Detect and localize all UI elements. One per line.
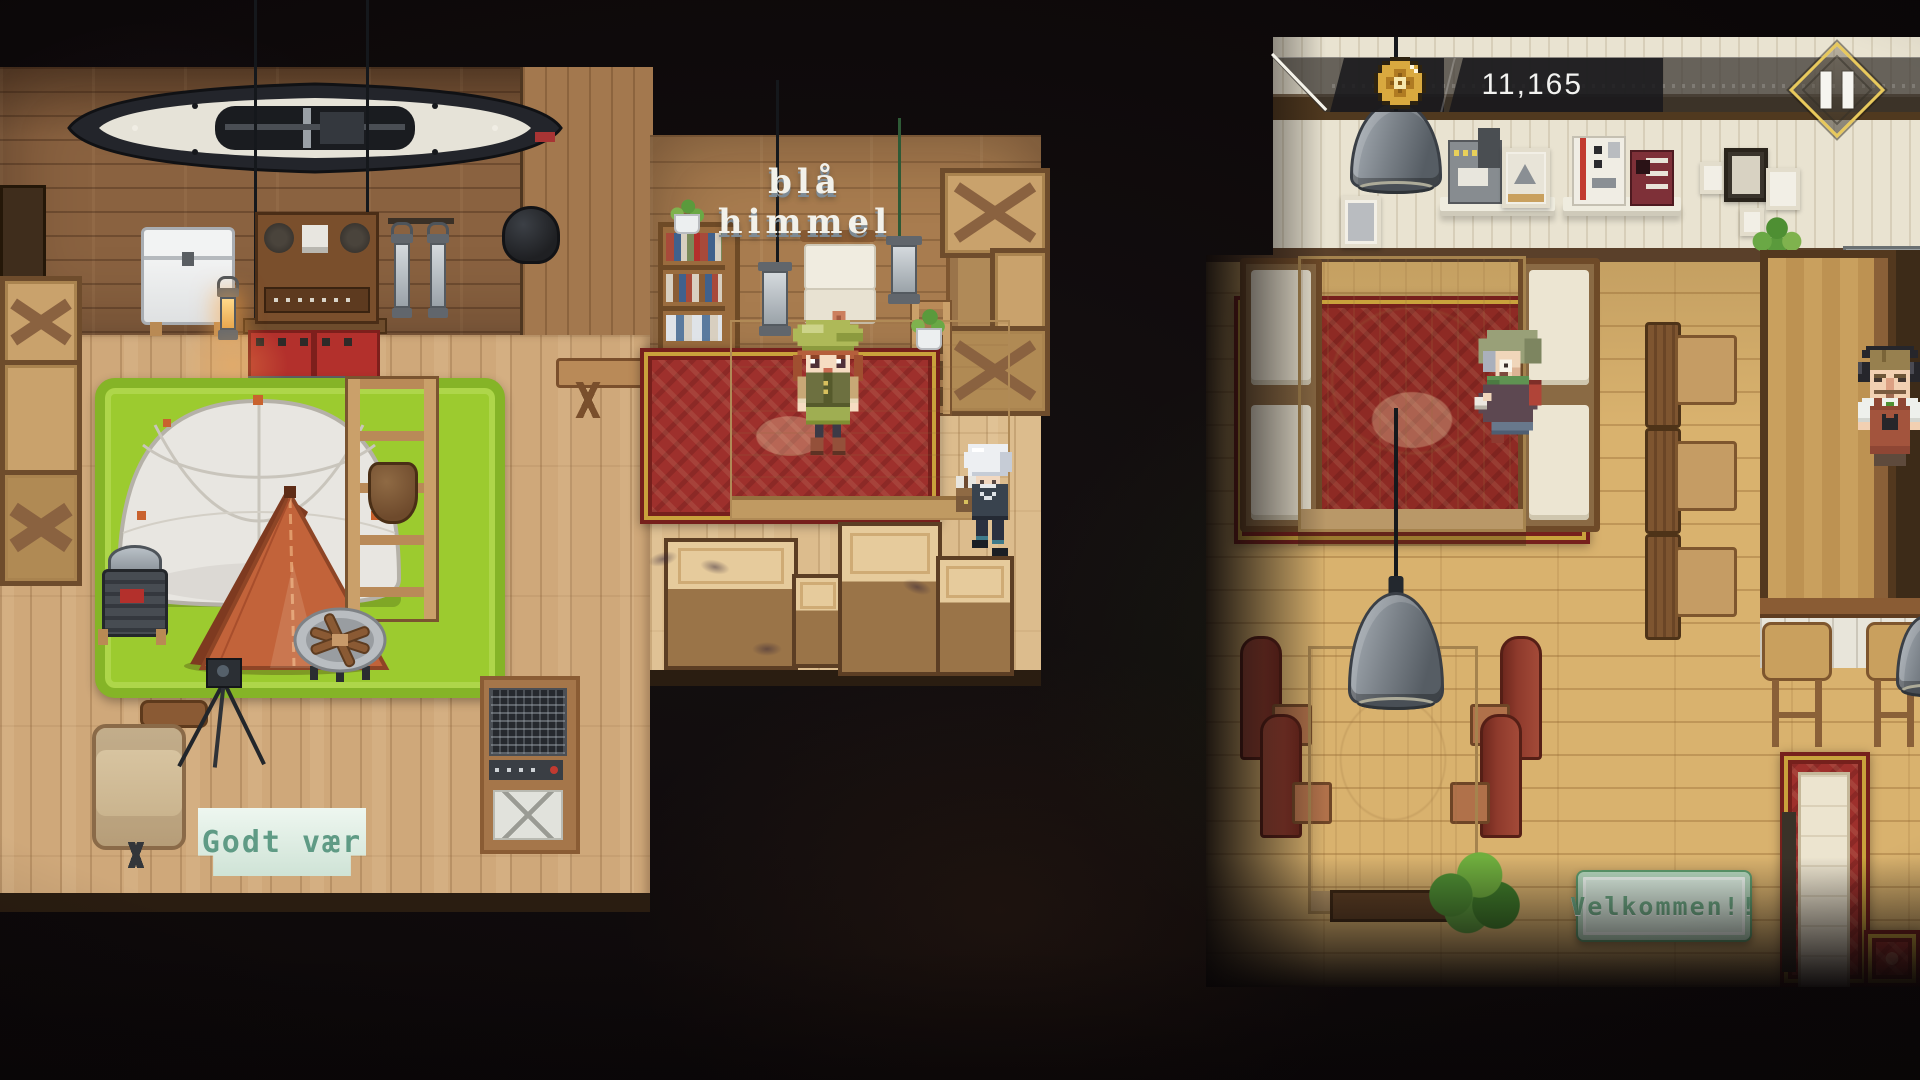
picture-frame (1341, 196, 1381, 248)
side-rug (1864, 930, 1920, 987)
camp-chair (92, 724, 186, 850)
tall-chair (1645, 322, 1741, 422)
velkommen-plaque: Velkommen!! (1576, 870, 1752, 942)
hanging-lantern (388, 234, 416, 318)
side-bench (1782, 812, 1796, 972)
tall-chair (1645, 534, 1741, 634)
grill-top (489, 688, 567, 756)
picture-frame (1700, 162, 1726, 194)
bookshelf (658, 222, 740, 358)
canoe (65, 76, 565, 180)
books-row (666, 274, 722, 302)
pendant-lamp-partial (1896, 615, 1920, 691)
stacked-crate (940, 168, 1050, 258)
bar-stool (1762, 622, 1832, 747)
store-name-sign: blå himmel (680, 162, 930, 242)
grill-cart (480, 676, 580, 854)
bench-leg (566, 382, 610, 418)
barista-npc[interactable] (1850, 346, 1920, 470)
radio-keys (302, 225, 328, 253)
cooler-latch (182, 252, 194, 266)
shelf-line (663, 306, 725, 311)
camera-tripod (176, 640, 286, 780)
floor-crate (792, 574, 844, 668)
shopkeeper-npc[interactable] (780, 306, 876, 456)
store-baseboard (0, 893, 650, 912)
jug-label (120, 589, 144, 603)
grandma-npc[interactable] (1462, 330, 1554, 443)
jug-leg (98, 629, 108, 645)
hanging-lantern (424, 234, 452, 318)
wall-crate (0, 470, 82, 586)
grill-controls (489, 760, 563, 780)
coffee-grinder (1478, 128, 1500, 168)
dark-cabinet (0, 185, 46, 287)
side-table (1798, 772, 1850, 993)
camera (206, 658, 242, 688)
hanging-pot (368, 462, 418, 524)
picture-frame (1766, 168, 1800, 210)
pendant-lamp (1350, 100, 1442, 188)
floor-crate (838, 522, 942, 676)
wall-pot (502, 206, 560, 264)
cooler-leg (150, 322, 162, 336)
camp-chair-legs (96, 842, 176, 868)
game-screen: blå himmel Godt vær (0, 0, 1920, 1080)
pause-button[interactable] (1790, 43, 1884, 137)
books-row (666, 315, 722, 341)
hanging-lantern (880, 236, 928, 304)
picture-frame (1724, 148, 1768, 202)
counter-plant-pot (916, 328, 942, 350)
floor-crate (936, 556, 1014, 676)
grill-cooler (493, 790, 563, 840)
tall-chair (1645, 428, 1741, 528)
player-character[interactable] (948, 440, 1028, 560)
shelf-line (663, 265, 725, 270)
pause-icon (1821, 72, 1854, 109)
wall-crate (0, 276, 82, 370)
radio (255, 212, 379, 324)
cafe-scene: Velkommen!! (1206, 37, 1920, 987)
espresso-machine (1572, 136, 1626, 206)
jug-leg (156, 629, 166, 645)
red-cabinet (1630, 150, 1674, 206)
water-jug (98, 545, 166, 645)
godt-vaer-text: Godt vær (202, 825, 363, 860)
fire-bowl (292, 596, 388, 682)
pendant-lamp (1348, 592, 1444, 704)
radio-band (264, 287, 370, 313)
bush-plant (1424, 840, 1520, 940)
godt-vaer-plaque: Godt vær (198, 808, 366, 876)
jug-body (102, 569, 168, 637)
speaker (340, 223, 370, 253)
velkommen-text: Velkommen!! (1570, 892, 1758, 921)
speaker (264, 223, 294, 253)
chair-cushion (804, 244, 876, 290)
wall-crate (0, 360, 82, 480)
footprint (752, 642, 782, 656)
tripod-leg (220, 677, 266, 765)
framed-picture (1502, 148, 1550, 208)
